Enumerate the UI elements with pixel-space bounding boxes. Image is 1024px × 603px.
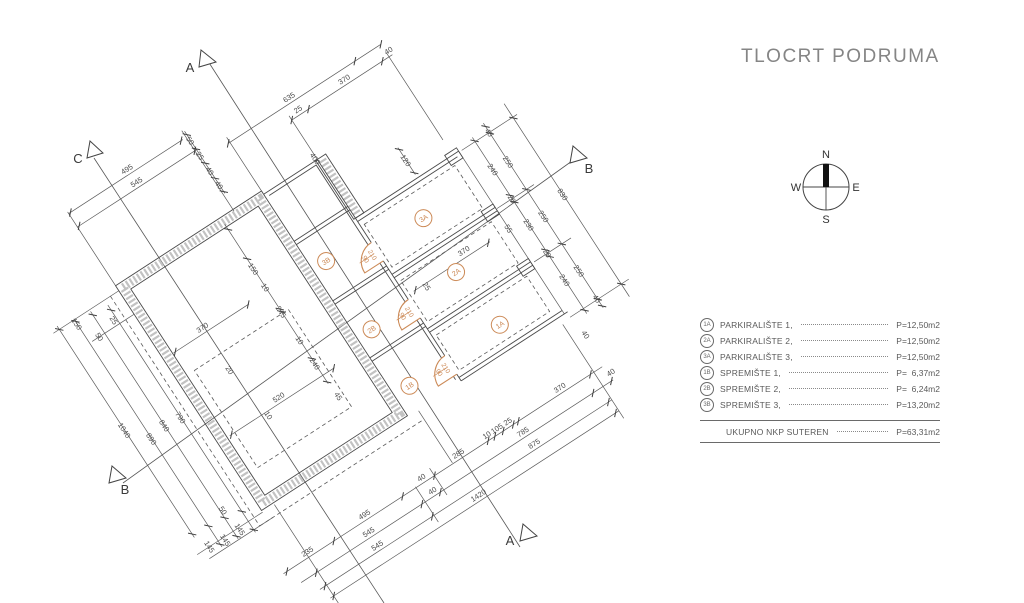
dimension-label: 250 bbox=[536, 209, 550, 224]
dimension-label: 250 bbox=[572, 263, 586, 278]
dimension-label: 245 bbox=[274, 304, 288, 319]
dimension-label: 875 bbox=[526, 437, 541, 451]
dimension-label: 1420 bbox=[469, 487, 488, 504]
section-letter: B bbox=[585, 161, 594, 176]
dimension-label: 495 bbox=[119, 162, 134, 176]
legend-total-value: P=63,31m2 bbox=[896, 427, 940, 437]
compass-rose: NSWE bbox=[791, 149, 860, 226]
dimension-label: 370 bbox=[456, 244, 471, 258]
dimension-label: 40 bbox=[383, 45, 395, 57]
section-marker-triangle bbox=[87, 141, 103, 158]
dimension-label: 240 bbox=[485, 162, 499, 177]
parking-walls bbox=[353, 146, 567, 381]
dimension-ticks bbox=[4, 0, 683, 603]
section-lines bbox=[87, 50, 587, 603]
dotted-leader bbox=[789, 387, 888, 389]
legend-row: 1B SPREMIŠTE 1, P= 6,37m2 bbox=[700, 365, 940, 381]
plan-rotated-group: 4955456352537040502540404001204025025025… bbox=[0, 0, 691, 603]
section-marker-triangle bbox=[520, 524, 537, 541]
dotted-leader bbox=[801, 323, 889, 325]
dimension-label: 840 bbox=[157, 418, 171, 433]
section-letter: A bbox=[506, 533, 515, 548]
dimension-label: 370 bbox=[552, 381, 567, 395]
compass-letter-s: S bbox=[822, 214, 829, 226]
dimension-label: 50 bbox=[93, 331, 105, 343]
legend-row: 3B SPREMIŠTE 3, P=13,20m2 bbox=[700, 397, 940, 413]
dimension-label: 10 bbox=[259, 282, 271, 294]
room-tag-badge: 2B bbox=[700, 382, 714, 396]
legend-value: P=12,50m2 bbox=[896, 336, 940, 346]
dimension-label: 145 bbox=[202, 539, 216, 554]
dimension-label: 520 bbox=[271, 390, 286, 404]
dimension-label: 10 bbox=[293, 334, 305, 346]
room-tag-badge: 1A bbox=[700, 318, 714, 332]
dimension-label: 150 bbox=[70, 316, 84, 331]
dimension-label: 635 bbox=[281, 90, 296, 104]
dimension-label: 545 bbox=[361, 525, 376, 539]
legend-separator bbox=[700, 442, 940, 443]
room-tag-badge: 3B bbox=[700, 398, 714, 412]
legend-label: SPREMIŠTE 2, bbox=[720, 384, 781, 394]
exterior-walls bbox=[116, 151, 470, 511]
dimension-label: 120 bbox=[398, 153, 412, 168]
dimension-label: 250 bbox=[501, 154, 515, 169]
legend-value: P= 6,37m2 bbox=[896, 368, 940, 378]
room-tag-badge: 2A bbox=[700, 334, 714, 348]
dimension-label: 40 bbox=[605, 366, 617, 378]
legend-value: P=13,20m2 bbox=[896, 400, 940, 410]
dotted-leader bbox=[801, 339, 889, 341]
compass-letter-w: W bbox=[791, 182, 802, 194]
dotted-leader bbox=[837, 430, 889, 432]
dimension-label: 830 bbox=[555, 187, 569, 202]
page-title: TLOCRT PODRUMA bbox=[741, 46, 940, 68]
tick-marks bbox=[4, 0, 683, 603]
dimension-label: 240 bbox=[557, 273, 571, 288]
area-legend: 1A PARKIRALIŠTE 1, P=12,50m2 2A PARKIRAL… bbox=[700, 317, 940, 443]
dimension-label: 370 bbox=[336, 72, 351, 86]
legend-value: P=12,50m2 bbox=[896, 320, 940, 330]
dimension-label: 1040 bbox=[116, 421, 133, 440]
legend-row: 3A PARKIRALIŠTE 3, P=12,50m2 bbox=[700, 349, 940, 365]
basement-floor-plan: 4955456352537040502540404001204025025025… bbox=[0, 0, 1024, 603]
legend-row: 1A PARKIRALIŠTE 1, P=12,50m2 bbox=[700, 317, 940, 333]
legend-label: SPREMIŠTE 1, bbox=[720, 368, 781, 378]
dimension-label: 40 bbox=[483, 127, 495, 139]
legend-label: PARKIRALIŠTE 2, bbox=[720, 336, 793, 346]
dimension-label: 890 bbox=[144, 431, 158, 446]
dotted-leader bbox=[789, 403, 888, 405]
dimension-label: 150 bbox=[246, 261, 260, 276]
legend-value: P=12,50m2 bbox=[896, 352, 940, 362]
compass-needle bbox=[823, 164, 829, 187]
dotted-leader bbox=[801, 355, 889, 357]
section-marker-triangle bbox=[109, 466, 126, 483]
dimension-label: 495 bbox=[357, 507, 372, 521]
dimension-label: 50 bbox=[217, 505, 229, 517]
dimension-label: 40 bbox=[579, 329, 591, 341]
section-marker-triangle bbox=[199, 50, 216, 67]
section-letters: AABBC bbox=[73, 60, 593, 548]
dimension-label: 545 bbox=[129, 175, 144, 189]
dimension-label: 55 bbox=[502, 223, 514, 235]
drawing-sheet: 4955456352537040502540404001204025025025… bbox=[0, 0, 1024, 603]
dimension-label: 790 bbox=[173, 410, 187, 425]
compass-letter-n: N bbox=[822, 149, 830, 161]
dotted-leader bbox=[789, 371, 888, 373]
room-tag-badge: 1B bbox=[700, 366, 714, 380]
dimension-label: 545 bbox=[370, 538, 385, 552]
legend-row: 2A PARKIRALIŠTE 2, P=12,50m2 bbox=[700, 333, 940, 349]
dimension-chains bbox=[0, 0, 691, 603]
legend-value: P= 6,24m2 bbox=[896, 384, 940, 394]
legend-total-label: UKUPNO NKP SUTEREN bbox=[726, 427, 829, 437]
compass-letter-e: E bbox=[852, 182, 859, 194]
room-tag-badge: 3A bbox=[700, 350, 714, 364]
dimension-label: 230 bbox=[521, 217, 535, 232]
section-letter: C bbox=[73, 151, 82, 166]
legend-label: SPREMIŠTE 3, bbox=[720, 400, 781, 410]
legend-label: PARKIRALIŠTE 3, bbox=[720, 352, 793, 362]
legend-label: PARKIRALIŠTE 1, bbox=[720, 320, 793, 330]
legend-total-row: UKUPNO NKP SUTEREN P=63,31m2 bbox=[700, 421, 940, 442]
section-letter: A bbox=[186, 60, 195, 75]
dimension-label: 785 bbox=[515, 425, 530, 439]
dimension-label: 25 bbox=[421, 280, 433, 292]
dimension-label: 20 bbox=[223, 364, 235, 376]
section-letter: B bbox=[121, 482, 130, 497]
legend-row: 2B SPREMIŠTE 2, P= 6,24m2 bbox=[700, 381, 940, 397]
